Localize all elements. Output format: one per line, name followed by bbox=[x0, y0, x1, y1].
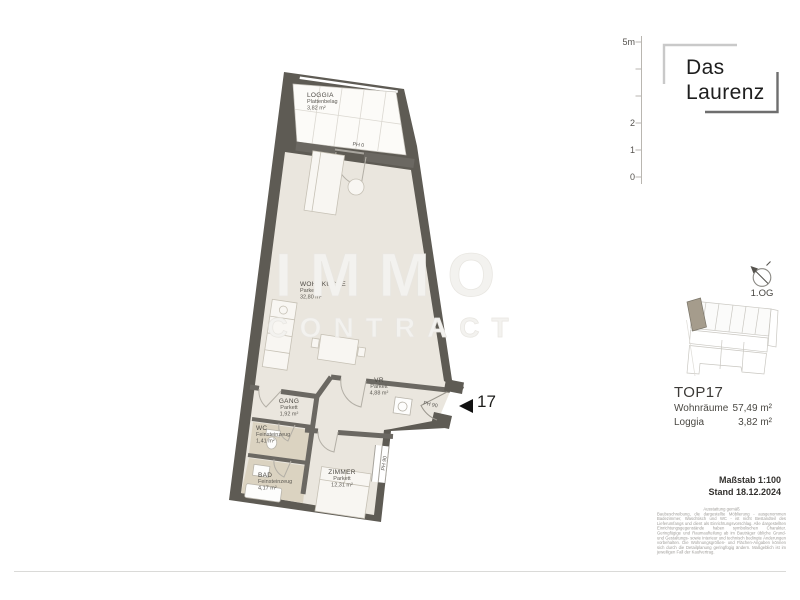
room-name: VR bbox=[357, 376, 401, 384]
room-area: 4,88 m² bbox=[357, 390, 401, 396]
logo-line2: Laurenz bbox=[686, 80, 765, 105]
room-area: 4,17 m² bbox=[258, 485, 310, 491]
logo-line1: Das bbox=[686, 55, 765, 80]
unit-row-value: 57,49 m² bbox=[700, 403, 772, 414]
logo-text: Das Laurenz bbox=[686, 55, 765, 105]
room-label-bad: BAD Feinsteinzeug 4,17 m² bbox=[258, 471, 310, 491]
scale-label-1: 1 bbox=[613, 145, 635, 155]
room-name: LOGGIA bbox=[307, 91, 377, 99]
north-arrow-icon bbox=[751, 262, 771, 287]
round-table bbox=[348, 179, 364, 195]
room-area: 1,92 m² bbox=[268, 411, 310, 417]
footer-divider bbox=[14, 571, 786, 572]
room-name: WC bbox=[256, 424, 312, 432]
room-label-loggia: LOGGIA Plattenbelag 3,82 m² bbox=[307, 91, 377, 111]
entrance-number: 17 bbox=[477, 392, 496, 412]
scale-label-5m: 5m bbox=[613, 37, 635, 47]
plan-sheet: LOGGIA Plattenbelag 3,82 m² WOHNKÜCHE Pa… bbox=[0, 0, 800, 600]
room-label-zimmer: ZIMMER Parkett 12,31 m² bbox=[314, 468, 370, 488]
disclaimer-block: Ausstattung gemäß Baubeschreibung, die d… bbox=[657, 507, 787, 567]
unit-row-value: 3,82 m² bbox=[700, 417, 772, 428]
room-label-wc: WC Feinsteinzeug 1,41 m² bbox=[256, 424, 312, 444]
room-label-vr: VR Parkett 4,88 m² bbox=[357, 376, 401, 396]
unit-title: TOP17 bbox=[674, 384, 723, 401]
room-label-gang: GANG Parkett 1,92 m² bbox=[268, 397, 310, 417]
room-name: WOHNKÜCHE bbox=[300, 280, 372, 288]
room-name: GANG bbox=[268, 397, 310, 405]
room-area: 32,80 m² bbox=[300, 294, 372, 300]
room-area: 3,82 m² bbox=[307, 105, 377, 111]
washing-machine bbox=[393, 397, 412, 415]
room-area: 1,41 m² bbox=[256, 438, 312, 444]
room-name: BAD bbox=[258, 471, 310, 479]
scale-label-0: 0 bbox=[613, 172, 635, 182]
date-note: Stand 18.12.2024 bbox=[660, 486, 781, 498]
scale-label-2: 2 bbox=[613, 118, 635, 128]
disclaimer-body: Baubeschreibung, die dargestellte Möblie… bbox=[657, 511, 786, 554]
north-arrow-label: 1.OG bbox=[744, 288, 780, 299]
room-name: ZIMMER bbox=[314, 468, 370, 476]
key-plan bbox=[687, 298, 779, 376]
scale-bar bbox=[636, 36, 642, 184]
scale-note: Maßstab 1:100 bbox=[660, 474, 781, 486]
room-label-wohnkueche: WOHNKÜCHE Parkett 32,80 m² bbox=[300, 280, 372, 300]
room-area: 12,31 m² bbox=[314, 482, 370, 488]
